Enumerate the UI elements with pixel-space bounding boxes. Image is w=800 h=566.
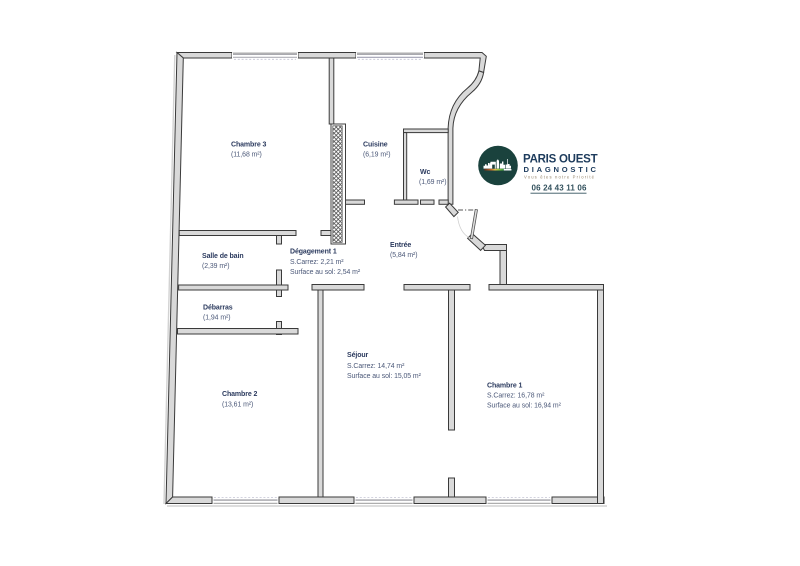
svg-text:(2,39 m²): (2,39 m²) <box>202 263 230 270</box>
svg-text:DIAGNOSTIC: DIAGNOSTIC <box>524 165 599 174</box>
svg-text:Cuisine: Cuisine <box>363 142 388 149</box>
svg-text:(6,19 m²): (6,19 m²) <box>363 152 391 159</box>
svg-text:Entrée: Entrée <box>390 242 411 249</box>
svg-text:(1,94 m²): (1,94 m²) <box>203 315 231 322</box>
svg-text:S.Carrez: 2,21 m²: S.Carrez: 2,21 m² <box>290 259 344 266</box>
svg-text:Dégagement 1: Dégagement 1 <box>290 249 337 256</box>
svg-text:06 24 43 11 06: 06 24 43 11 06 <box>532 184 587 193</box>
svg-text:Salle de bain: Salle de bain <box>202 253 244 260</box>
svg-text:(11,68 m²): (11,68 m²) <box>231 152 262 159</box>
svg-text:S.Carrez: 14,74 m²: S.Carrez: 14,74 m² <box>347 363 405 370</box>
svg-text:Débarras: Débarras <box>203 305 233 312</box>
svg-text:Surface au sol: 16,94 m²: Surface au sol: 16,94 m² <box>487 403 562 410</box>
svg-text:Séjour: Séjour <box>347 352 369 359</box>
svg-text:S.Carrez: 16,78 m²: S.Carrez: 16,78 m² <box>487 393 545 400</box>
svg-text:Vous êtes notre Priorité: Vous êtes notre Priorité <box>524 175 595 180</box>
svg-text:Chambre 1: Chambre 1 <box>487 383 522 390</box>
svg-text:Chambre 3: Chambre 3 <box>231 142 266 149</box>
svg-text:Surface au sol: 2,54 m²: Surface au sol: 2,54 m² <box>290 269 361 276</box>
svg-text:Wc: Wc <box>420 169 431 176</box>
svg-text:(13,61 m²): (13,61 m²) <box>222 402 253 409</box>
svg-text:(5,84 m²): (5,84 m²) <box>390 252 418 259</box>
svg-text:Surface au sol: 15,05 m²: Surface au sol: 15,05 m² <box>347 373 422 380</box>
svg-text:PARIS OUEST: PARIS OUEST <box>523 154 598 166</box>
svg-text:(1,69 m²): (1,69 m²) <box>419 179 447 186</box>
svg-text:Chambre 2: Chambre 2 <box>222 391 257 398</box>
